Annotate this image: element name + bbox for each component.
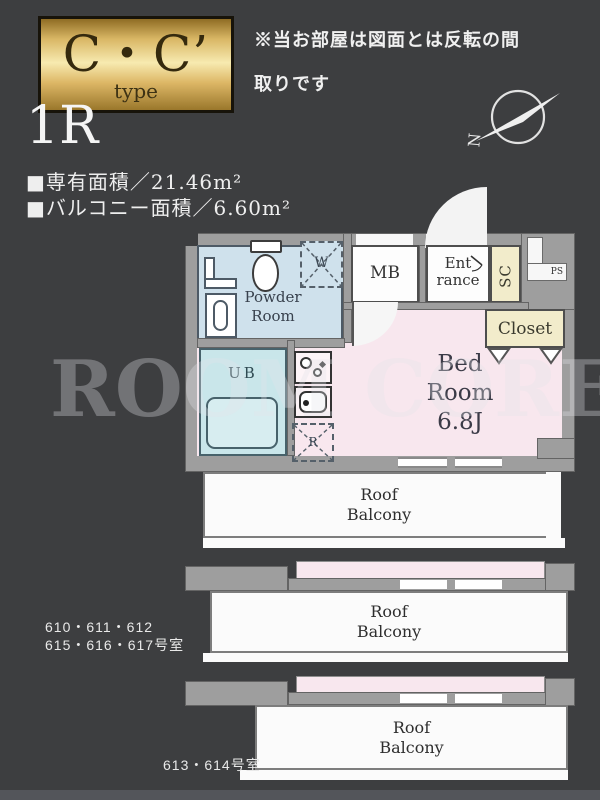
unit-numbers-group-1: 610・611・612 615・616・617号室 (45, 618, 184, 654)
counter-icon-2 (204, 278, 237, 289)
wall-corner-notch (184, 232, 198, 246)
balcony-1-side-strip (546, 472, 561, 548)
bedroom-label: Bed Room 6.8J (395, 350, 525, 436)
washer-label: W (302, 255, 341, 271)
mb-label: MB (353, 263, 417, 284)
balcony-area-label: ■バルコニー面積／6.60m² (26, 192, 291, 221)
window-opening (455, 694, 502, 703)
unit-bath-label: UB (201, 364, 285, 382)
compass-north-icon: N (465, 86, 565, 150)
window-opening (455, 580, 502, 589)
window-opening (398, 457, 447, 468)
closet-label: Closet (498, 319, 552, 339)
balcony-2-edge-strip (203, 653, 568, 662)
roof-balcony-1-label: Roof Balcony (347, 485, 411, 525)
type-badge-subtitle: type (114, 81, 158, 101)
lower-floor-wall-left-2 (185, 681, 288, 706)
window-opening (455, 457, 502, 468)
floorplan-card: C・C’ type ※当お部屋は図面とは反転の間 取りです N 1R ■専有面積… (0, 0, 600, 800)
roof-balcony-3: Roof Balcony (255, 705, 568, 770)
sink-icon (294, 351, 332, 384)
entrance-door-arc (425, 187, 487, 248)
toilet-icon (250, 240, 282, 296)
wall-mb-entrance (419, 245, 426, 303)
shoe-closet: SC (490, 245, 521, 303)
window-opening (400, 580, 447, 589)
fridge-icon: R (292, 423, 334, 462)
fridge-label: R (294, 435, 332, 449)
bathtub-icon (206, 397, 278, 449)
entrance-room: Ent rance (426, 245, 490, 303)
notice-line-1: ※当お部屋は図面とは反転の間 (254, 26, 589, 52)
unit-bath: UB (199, 348, 287, 456)
exclusive-area-label: ■専有面積／21.46m² (26, 166, 242, 195)
ps-duct: PS (527, 263, 567, 281)
wall-step-bottom-right (537, 438, 575, 459)
mb-room: MB (351, 245, 419, 303)
unit-numbers-group-2: 613・614号室 (163, 756, 261, 774)
bottom-strip (0, 790, 600, 800)
washbasin-icon (205, 293, 237, 338)
plan-type-label: 1R (26, 100, 98, 152)
stove-icon (294, 386, 332, 418)
lower-floor-wall-right-1 (545, 563, 575, 591)
roof-balcony-2: Roof Balcony (210, 591, 568, 653)
washer-icon: W (300, 241, 343, 288)
svg-text:N: N (465, 132, 484, 148)
roof-balcony-1: Roof Balcony (203, 472, 555, 538)
lower-floor-wall-right-2 (545, 678, 575, 706)
balcony-3-edge-strip (240, 770, 568, 780)
roof-balcony-3-label: Roof Balcony (379, 718, 443, 758)
wall-powder-ub (197, 338, 345, 348)
lower-floor-wall-left-1 (185, 566, 288, 591)
ps-label: PS (551, 267, 563, 277)
roof-balcony-2-label: Roof Balcony (357, 602, 421, 642)
shoe-closet-label: SC (497, 263, 515, 290)
closet: Closet (485, 309, 565, 348)
type-badge-title: C・C’ (63, 29, 209, 79)
entrance-door-icon (469, 255, 485, 273)
balcony-1-edge-strip (203, 538, 565, 548)
window-opening (400, 694, 447, 703)
